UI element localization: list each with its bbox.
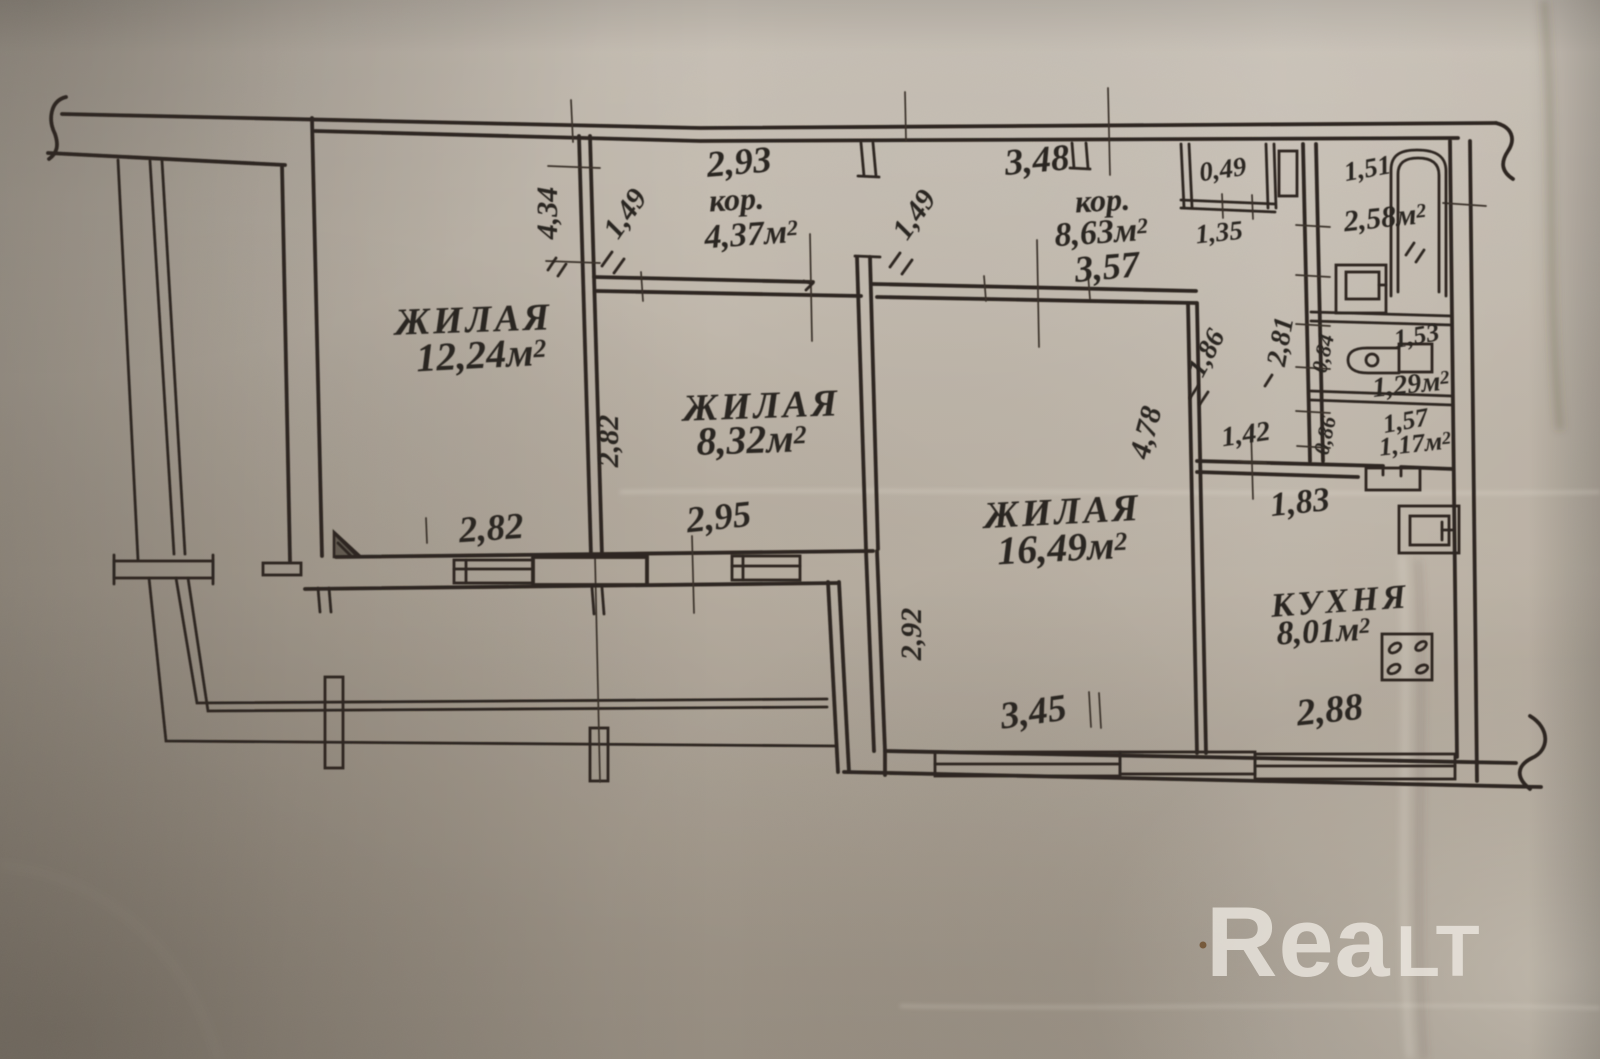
svg-text:8,32м2: 8,32м2 xyxy=(696,415,808,464)
svg-text:2,92: 2,92 xyxy=(895,608,928,662)
svg-text:16,49м2: 16,49м2 xyxy=(996,522,1129,574)
svg-text:3,48: 3,48 xyxy=(1002,137,1071,184)
svg-text:4,37м2: 4,37м2 xyxy=(702,213,799,257)
svg-text:2,82: 2,82 xyxy=(456,506,524,551)
svg-text:3,57: 3,57 xyxy=(1072,244,1143,291)
svg-text:2,88: 2,88 xyxy=(1293,686,1365,735)
svg-text:1,83: 1,83 xyxy=(1268,481,1331,524)
svg-text:2,82: 2,82 xyxy=(592,415,625,469)
svg-text:1,35: 1,35 xyxy=(1194,215,1244,250)
svg-text:Rea: Rea xyxy=(1206,886,1391,997)
svg-text:8,01м2: 8,01м2 xyxy=(1276,611,1372,653)
svg-text:2,95: 2,95 xyxy=(683,494,753,542)
svg-text:4,34: 4,34 xyxy=(531,187,564,241)
svg-text:LT: LT xyxy=(1396,912,1481,992)
svg-text:кор.: кор. xyxy=(708,180,765,219)
svg-text:12,24м2: 12,24м2 xyxy=(415,329,548,381)
